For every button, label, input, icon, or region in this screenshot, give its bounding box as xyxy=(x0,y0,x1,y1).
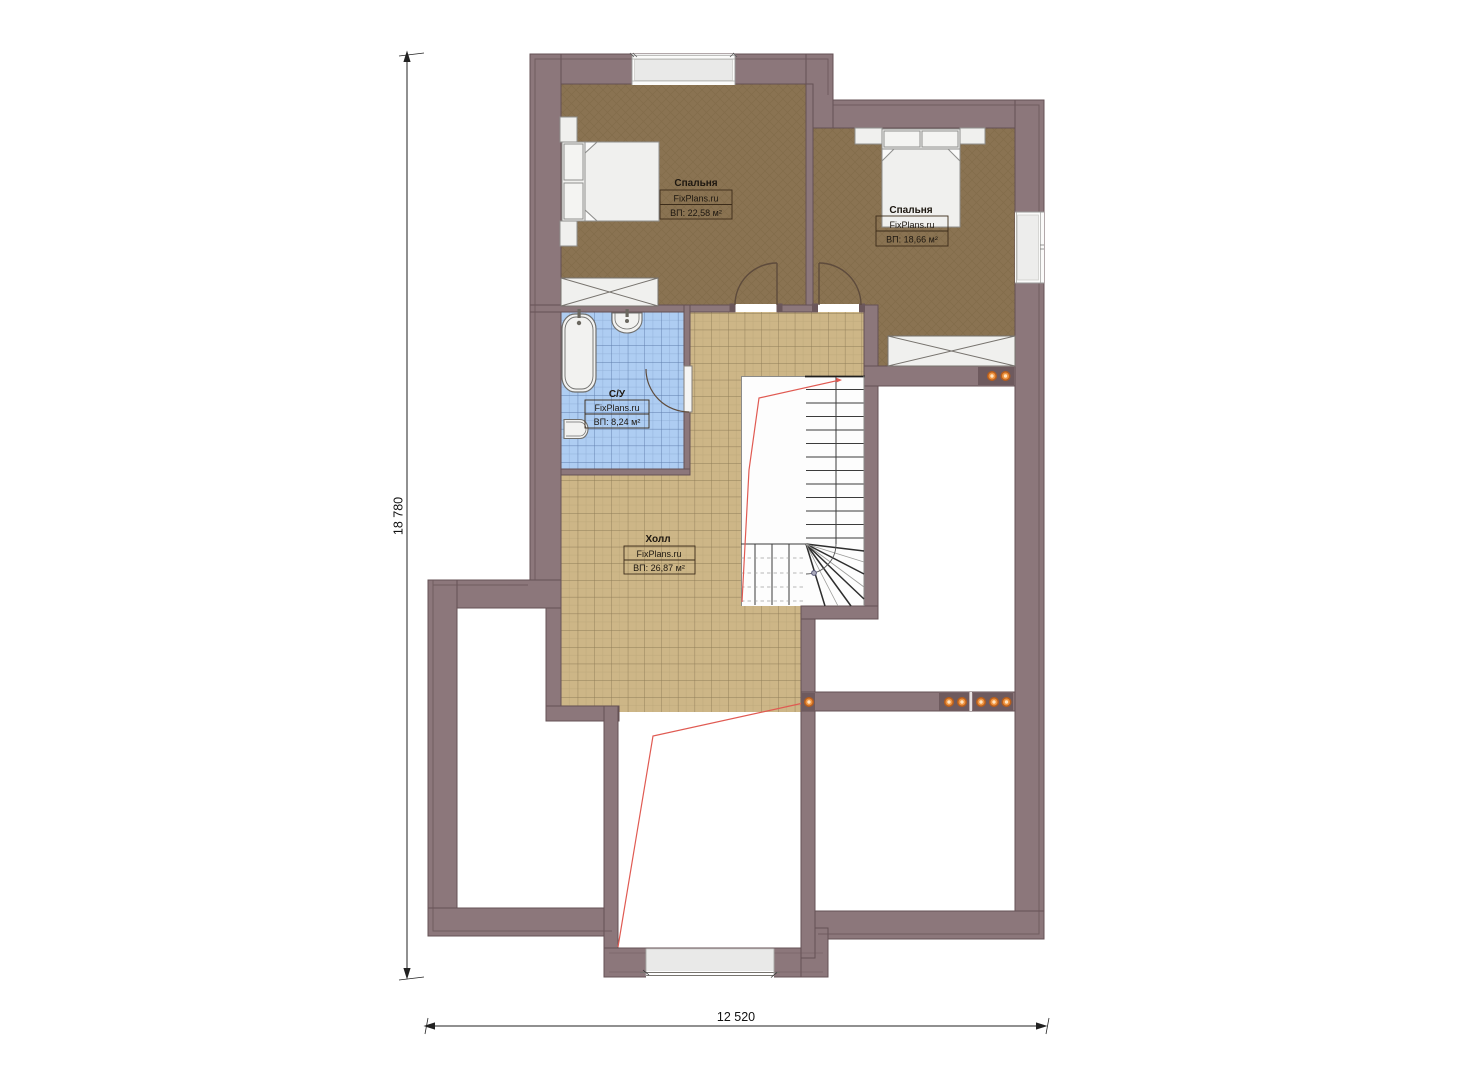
svg-text:Спальня: Спальня xyxy=(889,205,932,216)
svg-text:Спальня: Спальня xyxy=(674,178,717,189)
svg-text:12 520: 12 520 xyxy=(717,1010,755,1024)
svg-text:FixPlans.ru: FixPlans.ru xyxy=(673,194,718,204)
svg-text:FixPlans.ru: FixPlans.ru xyxy=(636,549,681,559)
svg-text:18 780: 18 780 xyxy=(392,497,406,535)
svg-text:FixPlans.ru: FixPlans.ru xyxy=(889,220,934,230)
svg-text:ВП: 26,87 м²: ВП: 26,87 м² xyxy=(633,563,685,573)
svg-text:ВП: 22,58 м²: ВП: 22,58 м² xyxy=(670,208,722,218)
svg-text:ВП: 18,66 м²: ВП: 18,66 м² xyxy=(886,235,938,245)
svg-text:ВП: 8,24 м²: ВП: 8,24 м² xyxy=(594,417,641,427)
svg-text:Холл: Холл xyxy=(645,534,670,545)
svg-text:FixPlans.ru: FixPlans.ru xyxy=(594,403,639,413)
svg-text:С/У: С/У xyxy=(609,389,626,400)
